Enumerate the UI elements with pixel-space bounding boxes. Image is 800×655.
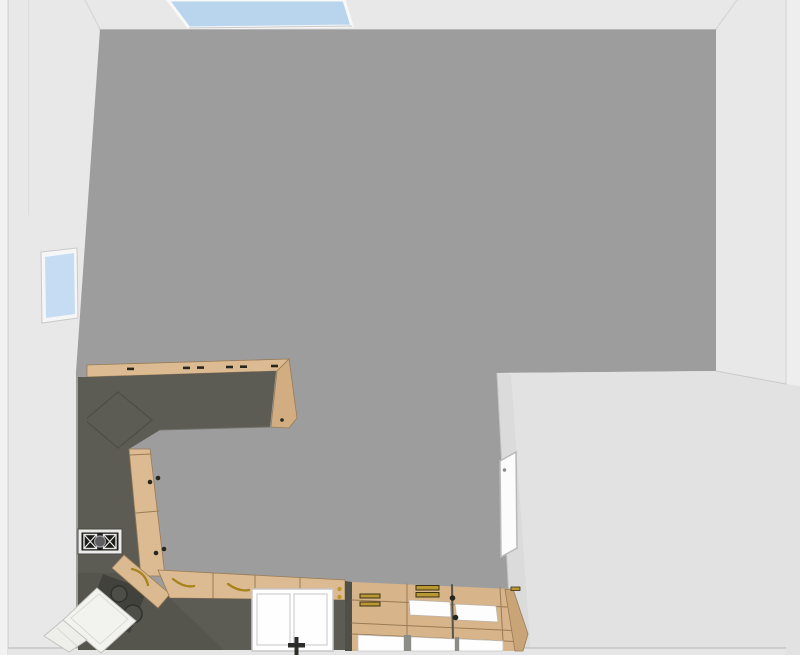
sink-run-knob xyxy=(337,587,341,591)
top-run-handle xyxy=(271,365,278,368)
right-cabinets-gap xyxy=(452,585,453,640)
top-run-handle xyxy=(226,366,233,369)
cabinet-knob-dark xyxy=(453,615,459,621)
gas-hob-burner xyxy=(95,536,106,547)
interior-door[interactable] xyxy=(500,452,517,557)
left-wall-outer xyxy=(0,0,8,655)
drawer-handle-gold xyxy=(511,587,520,591)
sink-run-knob xyxy=(337,595,341,599)
left-wall-outer-edge xyxy=(8,0,9,655)
cabinet-door-gap xyxy=(455,637,459,651)
left-run-knob xyxy=(162,547,167,552)
drawer-handle-gold xyxy=(416,586,439,591)
top-run-handle xyxy=(197,366,204,369)
left-run-knob xyxy=(156,476,161,481)
skylight-window[interactable] xyxy=(168,0,352,28)
sink-basin xyxy=(294,594,327,645)
cabinet-white-top xyxy=(455,604,498,622)
right-wall-outer xyxy=(786,0,800,388)
top-run-handle xyxy=(183,367,190,370)
cabinet-divider-dark xyxy=(345,581,352,651)
left-wall-corner-edge xyxy=(28,0,29,215)
cabinet-white-door[interactable] xyxy=(459,639,503,651)
cabinet-white-top xyxy=(409,600,451,617)
cabinet-knob-dark xyxy=(450,595,456,601)
cabinet-door-gap xyxy=(404,635,411,651)
window-glass xyxy=(45,253,75,318)
drawer-handle-gold xyxy=(360,602,380,606)
kitchen-planner-viewport xyxy=(0,0,800,655)
alcove-wall-top xyxy=(497,371,800,655)
drawer-handle-gold xyxy=(360,594,380,598)
faucet-bar xyxy=(288,643,305,648)
left-run-knob xyxy=(154,551,159,556)
kitchen-3d-scene xyxy=(0,0,800,655)
left-run-knob xyxy=(148,480,153,485)
sink-basin xyxy=(257,594,290,645)
top-run-handle xyxy=(127,368,134,371)
cabinet-white-door[interactable] xyxy=(411,637,455,651)
door-handle[interactable] xyxy=(503,468,506,471)
top-run-handle xyxy=(240,365,247,368)
cabinet-white-door[interactable] xyxy=(358,635,404,651)
right-wall-corner-edge xyxy=(785,0,786,388)
drawer-handle-gold xyxy=(416,593,439,598)
cooktop-burner xyxy=(111,586,127,602)
top-run-side-knob xyxy=(280,418,284,422)
